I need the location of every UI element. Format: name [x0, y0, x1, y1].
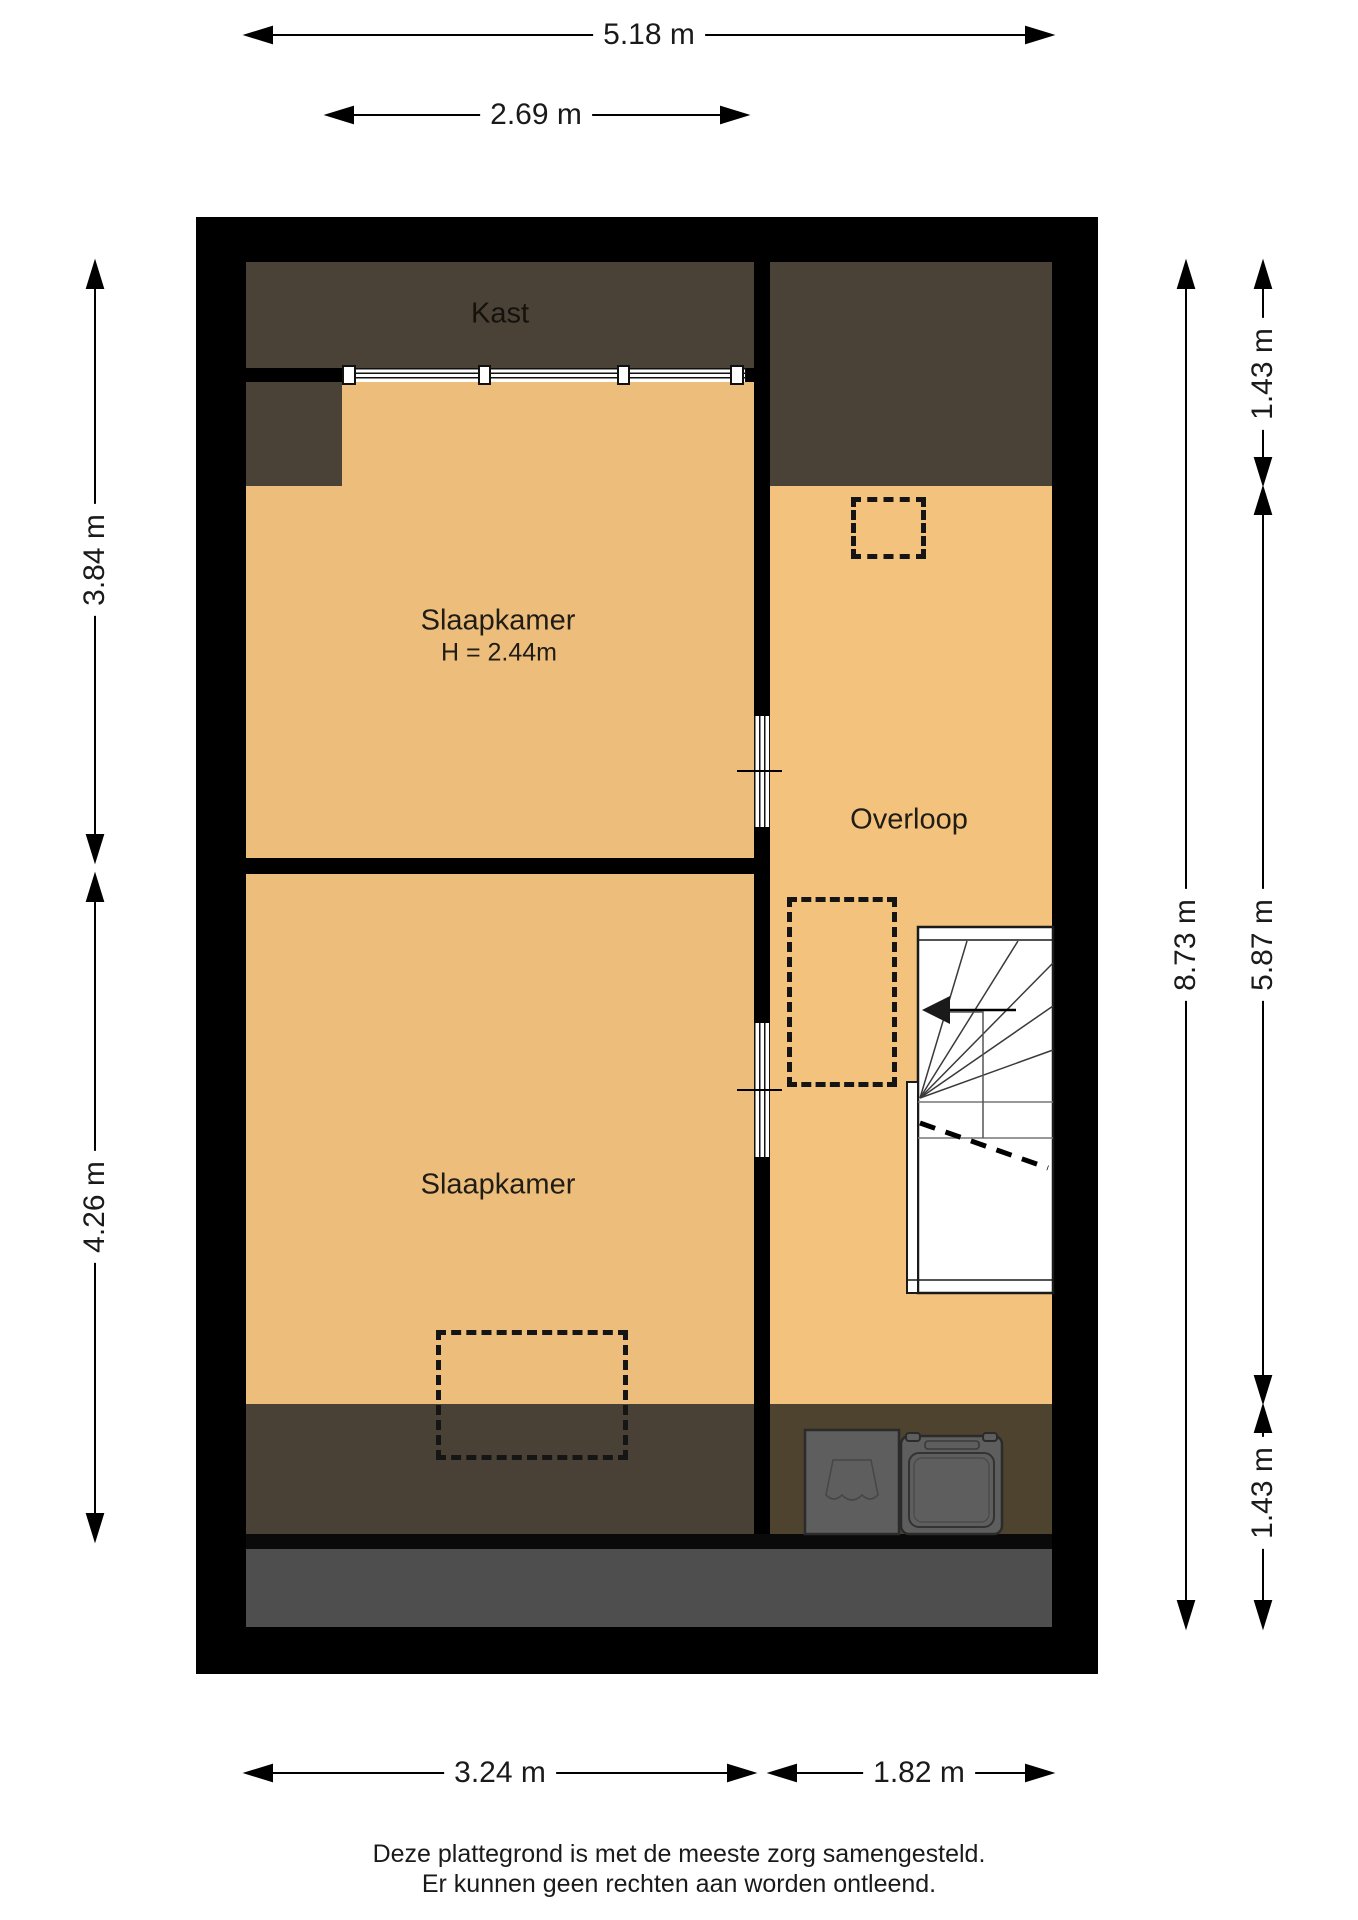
room-bedroom-bottom-floor — [246, 874, 754, 1404]
dim-label-top-window: 2.69 m — [480, 100, 592, 130]
footer-disclaimer-line2: Er kunnen geen rechten aan worden ontlee… — [422, 1869, 936, 1899]
wall-bedroom-divider — [246, 858, 770, 874]
dim-label-right-middle: 5.87 m — [1248, 889, 1278, 1001]
wall-middle-upper — [754, 262, 770, 716]
dim-label-left-lower: 4.26 m — [80, 1151, 110, 1263]
laundry-basket-icon — [805, 1430, 899, 1534]
footer-disclaimer-line1: Deze plattegrond is met de meeste zorg s… — [373, 1839, 986, 1869]
wall-middle-between-doors — [754, 827, 770, 1023]
wall-outer-left — [196, 217, 246, 1674]
window-mullion — [730, 365, 744, 385]
roof-edge-band — [246, 1549, 1052, 1627]
dim-label-right-total: 8.73 m — [1171, 889, 1201, 1001]
window-mullion — [478, 365, 491, 385]
skylight-marker-bedroom-bottom — [436, 1330, 628, 1460]
skylight-marker-overloop-large — [787, 897, 897, 1087]
wall-outer-bottom — [196, 1627, 1098, 1674]
washing-machine-icon — [901, 1433, 1002, 1534]
window-band-kast — [342, 368, 746, 382]
dim-label-right-lower-small: 1.43 m — [1248, 1437, 1278, 1549]
window-mullion — [342, 365, 356, 385]
wall-outer-top — [196, 217, 1098, 262]
room-label-bedroom-top: Slaapkamer — [421, 607, 576, 636]
wall-window-stub-left — [246, 368, 342, 382]
dim-label-bottom-left: 3.24 m — [444, 1758, 556, 1788]
room-label-overloop: Overloop — [850, 806, 968, 835]
roof-slope-zone-top-right — [770, 262, 1052, 486]
door-bedroom-top-tick — [737, 770, 782, 772]
skylight-marker-overloop-small — [851, 497, 926, 559]
roof-slope-zone-top-left — [246, 382, 342, 486]
floor-plan-page: 5.18 m 2.69 m 3.24 m 1.82 m 3.84 m 4.26 … — [0, 0, 1358, 1920]
stairs-icon — [900, 920, 1060, 1300]
window-mullion — [617, 365, 630, 385]
dim-label-left-upper: 3.84 m — [80, 504, 110, 616]
room-label-bedroom-bottom: Slaapkamer — [421, 1171, 576, 1200]
wall-middle-lower — [754, 1157, 770, 1534]
room-label-bedroom-top-height: H = 2.44m — [441, 641, 557, 666]
door-bedroom-bottom-tick — [737, 1089, 782, 1091]
dim-label-bottom-right: 1.82 m — [863, 1758, 975, 1788]
room-label-kast: Kast — [471, 300, 529, 329]
dim-label-right-upper-small: 1.43 m — [1248, 318, 1278, 430]
dim-label-top-total: 5.18 m — [593, 20, 705, 50]
appliances — [795, 1420, 1015, 1545]
